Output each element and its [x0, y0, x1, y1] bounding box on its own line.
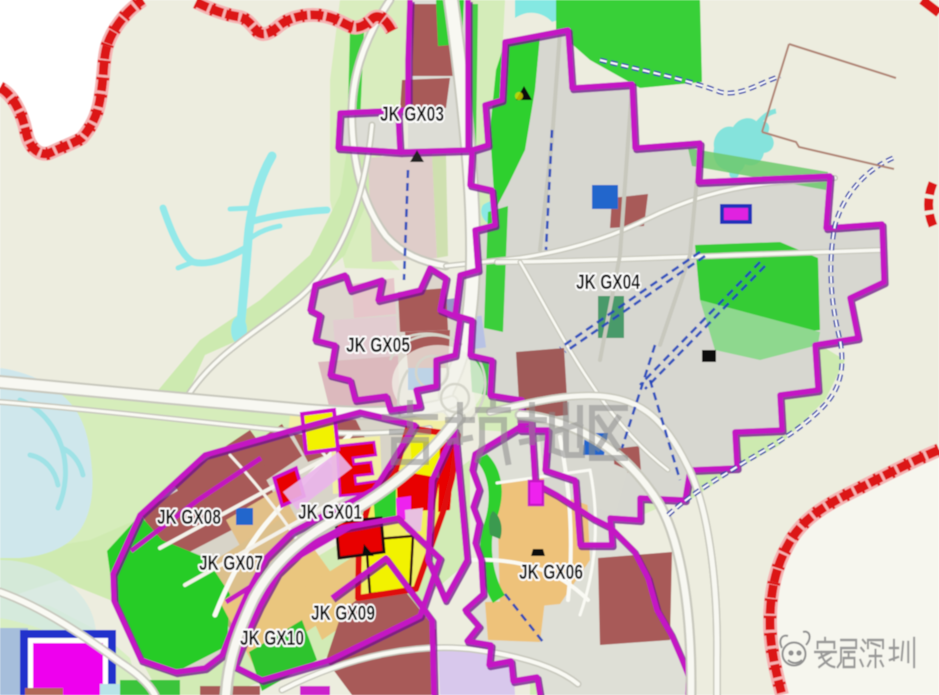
- svg-text:JK GX06: JK GX06: [519, 561, 583, 584]
- svg-text:JK GX01: JK GX01: [298, 501, 362, 524]
- svg-text:JK GX05: JK GX05: [346, 334, 410, 357]
- svg-text:JK GX09: JK GX09: [311, 602, 375, 625]
- svg-text:JK GX07: JK GX07: [199, 552, 263, 575]
- svg-text:JK GX08: JK GX08: [157, 506, 221, 529]
- svg-text:JK GX03: JK GX03: [380, 103, 444, 126]
- svg-text:JK GX04: JK GX04: [576, 271, 640, 294]
- svg-text:JK GX10: JK GX10: [240, 627, 304, 650]
